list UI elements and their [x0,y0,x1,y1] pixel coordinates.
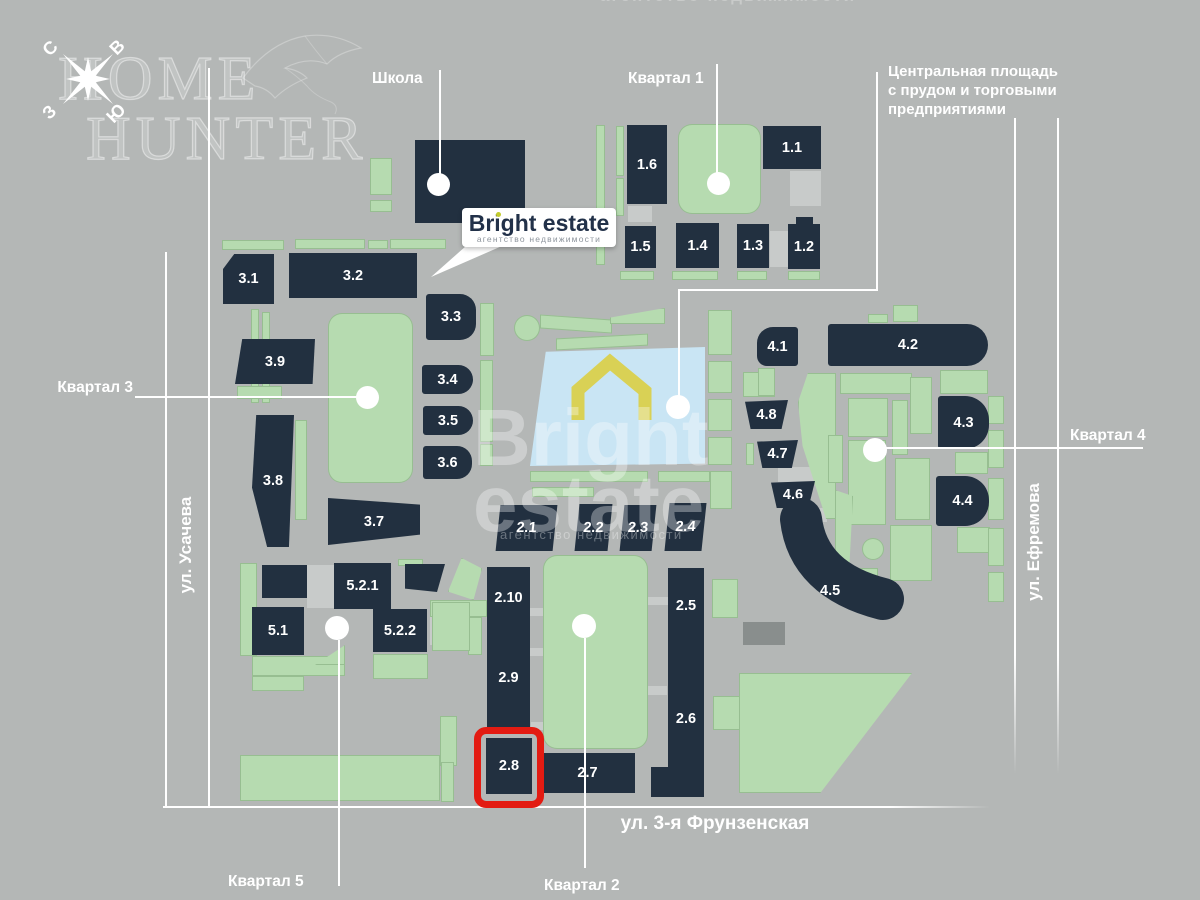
lawn [616,178,624,216]
label-central-square-line3: предприятиями [888,100,1058,119]
street-name-frunzenskaya: ул. 3-я Фрунзенская [595,813,835,837]
building-3-3[interactable]: 3.3 [426,294,476,340]
lawn [988,572,1004,602]
lawn [240,755,440,801]
lawn [710,471,732,509]
lawn [222,240,284,250]
leader-line-quarter-3 [135,396,358,398]
leader-line-quarter-1 [716,64,718,173]
leader-line-central-square-v2 [678,289,680,397]
lawn [713,696,740,730]
lawn [746,443,754,465]
label-quarter-2: Квартал 2 [544,877,620,895]
lawn [672,271,718,280]
shore-green [610,308,665,324]
lawn [370,158,392,195]
street-line-frunzenskaya [163,806,990,808]
lawn [988,528,1004,566]
building-4-5-label: 4.5 [820,583,840,599]
label-school: Школа [372,70,423,88]
building-5-2-2[interactable]: 5.2.2 [373,609,427,652]
house-logo-icon [555,352,655,432]
lawn [448,558,482,600]
building-1-3[interactable]: 1.3 [737,224,769,268]
quarter-1-marker-circle [707,172,730,195]
building-3-8[interactable]: 3.8 [252,415,294,547]
quarter-3-marker-circle [356,386,379,409]
lawn [480,303,494,356]
building-2-2[interactable]: 2.2 [575,504,613,551]
aux-building [307,565,334,608]
building-1-6[interactable]: 1.6 [627,125,667,204]
building-4-7[interactable]: 4.7 [757,440,798,468]
building-1-1[interactable]: 1.1 [763,126,821,169]
street-name-efremova: ул. Ефремова [1024,452,1048,632]
aux-dark-building[interactable] [405,564,445,592]
building-2-8[interactable]: 2.8 [486,738,532,794]
lawn [620,271,654,280]
lawn [373,654,428,679]
building-4-3[interactable]: 4.3 [938,396,989,449]
lawn [708,361,732,393]
lawn [940,370,988,394]
quarter-4-marker-circle [863,438,887,462]
lawn [712,579,738,618]
lawn [708,399,732,431]
lawn [708,437,732,465]
label-central-square: Центральная площадь с прудом и торговыми… [888,62,1058,119]
building-4-5-shape[interactable] [770,495,930,635]
lawn [616,126,624,176]
building-3-1[interactable]: 3.1 [223,254,274,304]
building-1-2-annex [796,217,813,225]
connector [648,597,668,605]
building-3-4[interactable]: 3.4 [422,365,473,394]
street-line-usacheva-outer [165,252,167,808]
label-quarter-5: Квартал 5 [228,873,304,891]
building-1-4[interactable]: 1.4 [676,223,719,268]
aux-building [628,206,652,222]
lawn [295,420,307,520]
tree-circle [514,315,540,341]
label-quarter-1: Квартал 1 [628,70,704,88]
lawn [868,314,888,323]
leader-line-quarter-5 [338,640,340,886]
leader-line-central-square-h [678,289,878,291]
shore-green [556,334,648,351]
building-2-7[interactable]: 2.7 [540,753,635,793]
building-2-5[interactable]: 2.5 [668,568,704,683]
building-2-1[interactable]: 2.1 [496,505,558,551]
street-line-efremova-outer [1014,118,1016,774]
logo-bubble: Bright estate агентство недвижимости [462,208,616,247]
lawn [708,310,732,355]
leader-line-quarter-4 [886,447,1143,449]
lawn [893,305,918,322]
building-2-6-annex [651,767,668,797]
lawn [988,396,1004,424]
lawn [441,762,454,802]
lawn [252,676,304,691]
building-3-2[interactable]: 3.2 [289,253,417,298]
building-4-8[interactable]: 4.8 [745,400,788,429]
lawn [440,716,457,766]
lawn [480,360,493,442]
building-2-6[interactable]: 2.6 [668,683,704,797]
leader-line-quarter-2 [584,638,586,868]
garden-green-q4 [828,435,843,483]
central-square-marker-circle [666,395,690,419]
aux-building [790,171,821,206]
leader-line-school [439,70,441,174]
lawn [370,200,392,212]
lawn [957,527,990,553]
building-1-5[interactable]: 1.5 [625,226,656,268]
eagle-watermark-icon [235,28,375,128]
lawn [955,452,988,474]
connector [645,686,667,695]
school-marker-circle [427,173,450,196]
lawn [737,271,767,280]
aux-dark-building[interactable] [262,565,307,598]
building-3-6[interactable]: 3.6 [423,446,472,479]
building-4-1[interactable]: 4.1 [757,327,798,366]
garden-green-q4 [910,377,932,434]
label-quarter-3: Квартал 3 [45,379,133,397]
lawn [988,478,1004,520]
label-central-square-line2: с прудом и торговыми [888,81,1058,100]
building-2-10[interactable]: 2.10 [487,567,530,628]
leader-line-central-square-v1 [876,72,878,291]
building-1-2[interactable]: 1.2 [788,224,820,269]
street-name-usacheva: ул. Усачева [176,455,200,635]
lawn-triangle [315,645,345,665]
lawn [368,240,388,249]
quarter-2-marker-circle [572,614,596,638]
lawn [295,239,365,249]
watermark-top-partial: агентство недвижимости [600,0,856,6]
building-3-7[interactable]: 3.7 [328,498,420,545]
lawn [532,487,594,497]
lawn [530,471,648,482]
logo-tagline-text: агентство недвижимости [462,234,616,244]
building-4-4[interactable]: 4.4 [936,476,989,526]
lawn [988,430,1004,468]
quarter-5-marker-circle [325,616,349,640]
building-2-4[interactable]: 2.4 [664,503,706,551]
residential-complex-site-map: ул. Усачева ул. Ефремова ул. 3-я Фрунзен… [0,0,1200,900]
logo-brand-text: Bright estate [462,210,616,236]
lawn [480,444,493,466]
building-5-1[interactable]: 5.1 [252,607,304,655]
park-green [678,124,761,214]
building-5-2-1[interactable]: 5.2.1 [334,563,391,609]
label-quarter-4: Квартал 4 [1070,427,1146,445]
building-3-5[interactable]: 3.5 [423,406,473,435]
label-central-square-line1: Центральная площадь [888,62,1058,81]
lawn [758,368,775,396]
building-2-9[interactable]: 2.9 [487,628,530,728]
courtyard-green-q2 [543,555,648,749]
street-line-efremova-inner [1057,118,1059,774]
garden-green-q4 [848,398,888,437]
garden-green-q4 [840,373,912,394]
lawn [788,271,820,280]
lawn [432,602,470,651]
lawn-trapezoid [739,673,912,793]
logo-i-dot-accent [496,212,501,217]
aux-building [770,231,788,267]
building-2-3[interactable]: 2.3 [620,505,657,551]
building-3-9[interactable]: 3.9 [235,339,315,384]
shore-green [540,314,612,333]
lawn [658,471,710,482]
building-4-2[interactable]: 4.2 [828,324,988,366]
lawn [468,617,482,655]
street-line-usacheva-inner [208,68,210,808]
